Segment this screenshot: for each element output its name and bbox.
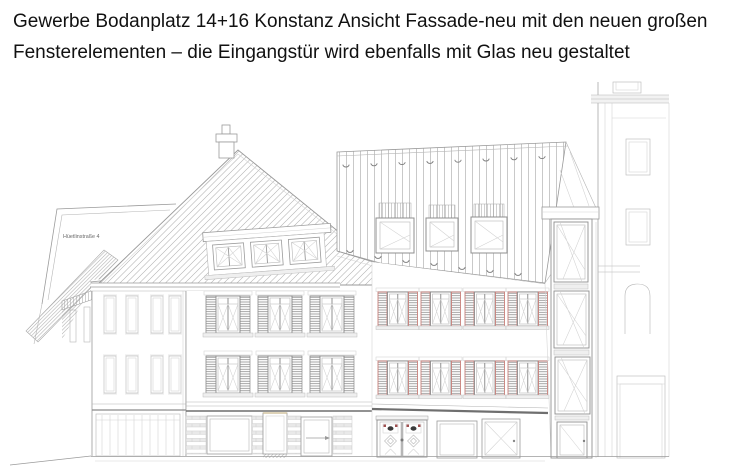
entry-door-14 <box>301 417 332 456</box>
document-page: Gewerbe Bodanplatz 14+16 Konstanz Ansich… <box>0 0 751 467</box>
building-right-neighbor <box>591 82 669 458</box>
building-16 <box>372 262 549 458</box>
roof-window-2 <box>426 205 458 251</box>
dormer <box>202 223 335 279</box>
street-label: Hüetlinstraße 4 <box>63 234 100 240</box>
facade-elevation-drawing: Hüetlinstraße 4 <box>0 0 751 467</box>
roof-window-1 <box>376 203 414 253</box>
tower-door <box>557 422 587 458</box>
building-14 <box>186 291 372 458</box>
roof-window-3 <box>471 204 507 253</box>
chimney <box>216 125 237 158</box>
eave-gutter <box>91 283 340 291</box>
building-left <box>90 272 188 456</box>
ornate-double-door <box>376 416 428 457</box>
side-door-16 <box>482 419 520 458</box>
